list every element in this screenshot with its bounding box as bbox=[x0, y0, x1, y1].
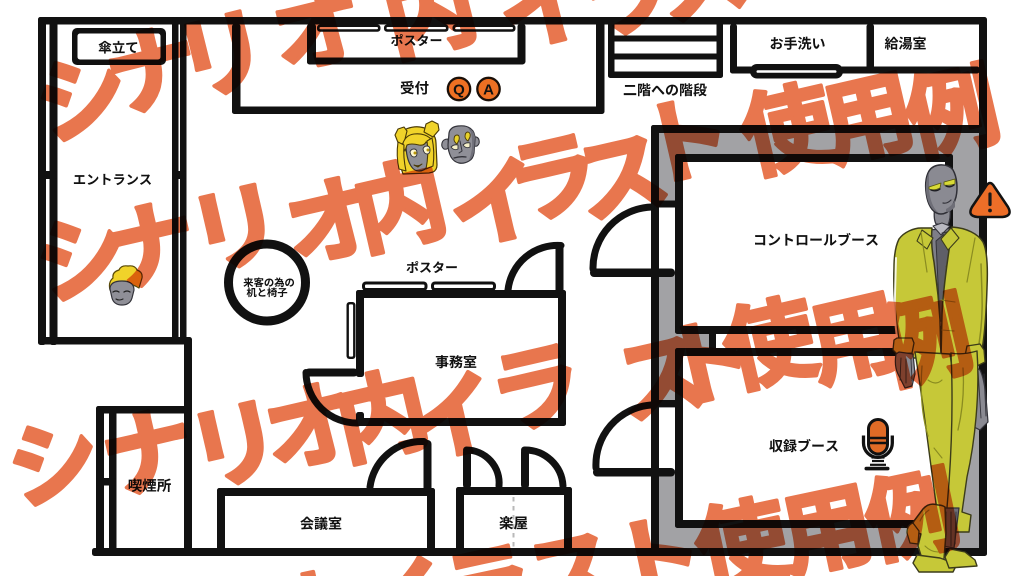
svg-text:A: A bbox=[483, 81, 494, 98]
svg-text:Q: Q bbox=[453, 81, 465, 98]
